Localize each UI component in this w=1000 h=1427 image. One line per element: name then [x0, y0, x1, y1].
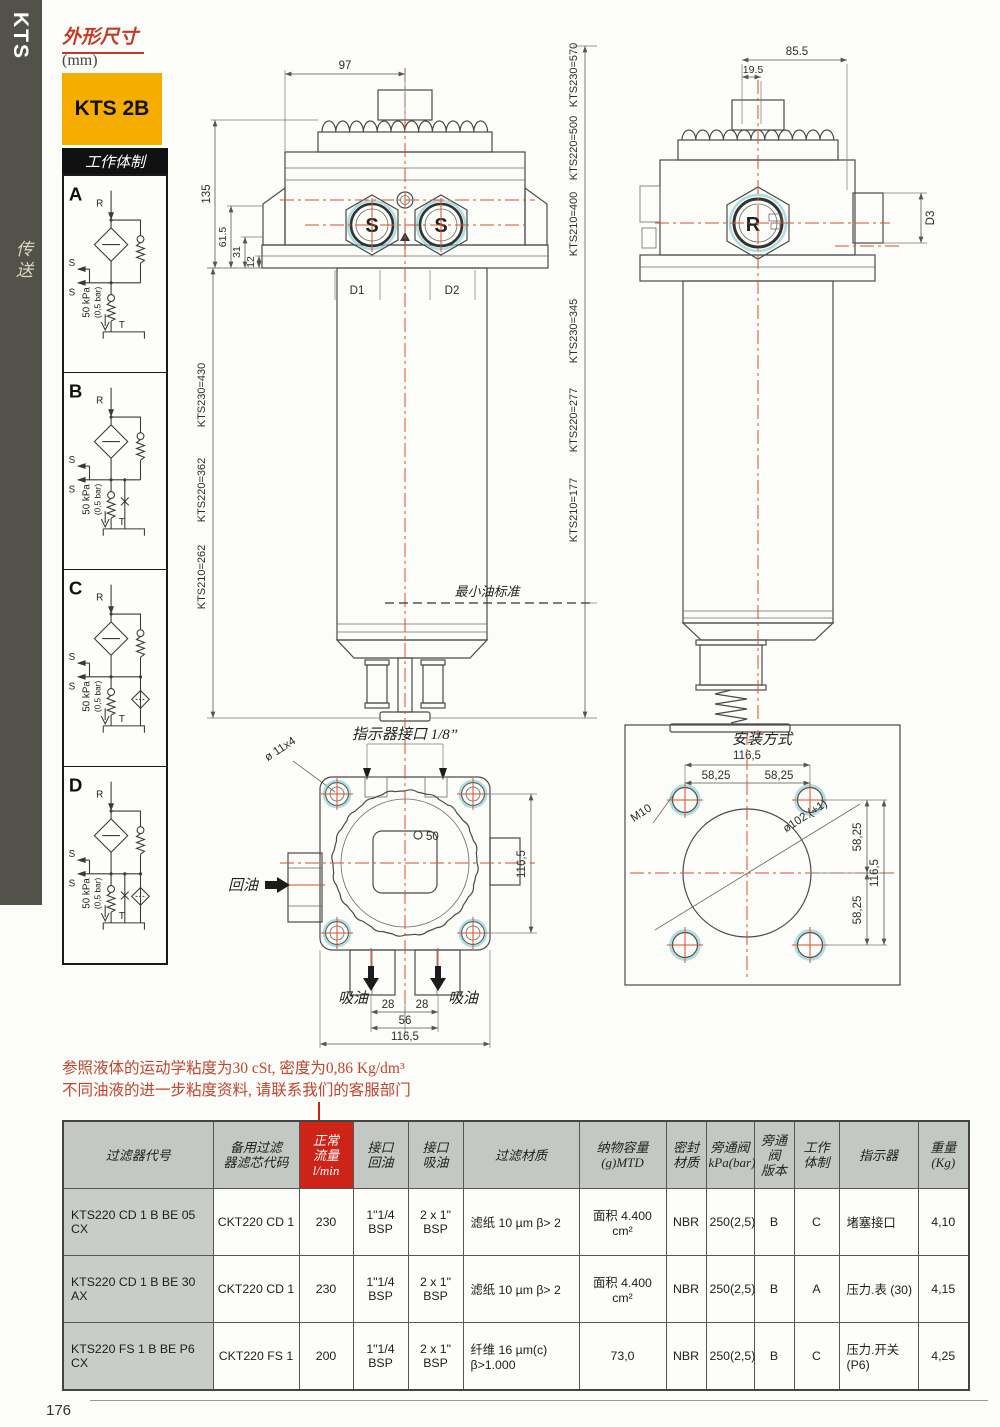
flow-column-pointer — [318, 1102, 320, 1120]
dim-12: 12 — [245, 256, 257, 268]
col-header-9: 旁通阀 版本 — [754, 1121, 794, 1189]
scheme-B-diagram: BRSST50 kPa(0,5 bar) — [64, 373, 166, 569]
scheme-D: DRSST50 kPa(0,5 bar) — [64, 766, 166, 963]
table-cell: KTS220 CD 1 B BE 05 CX — [63, 1189, 213, 1256]
dim-85-5: 85.5 — [786, 46, 808, 58]
svg-text:S: S — [69, 258, 76, 269]
height-total-220: KTS220=500 — [568, 116, 580, 181]
col-header-11: 指示器 — [839, 1121, 918, 1189]
scheme-D-diagram: DRSST50 kPa(0,5 bar) — [64, 767, 166, 963]
table-cell: 230 — [299, 1256, 353, 1323]
col-header-12: 重量 (Kg) — [918, 1121, 969, 1189]
table-cell: 2 x 1" BSP — [408, 1256, 463, 1323]
svg-text:50 kPa: 50 kPa — [82, 878, 93, 909]
table-cell: C — [794, 1189, 839, 1256]
dim-58-left: 58,25 — [702, 770, 731, 782]
svg-text:D: D — [69, 774, 82, 795]
svg-text:R: R — [96, 198, 103, 209]
col-header-6: 纳物容量 (g)MTD — [579, 1121, 666, 1189]
table-cell: 纤维 16 µm(c) β>1.000 — [463, 1323, 579, 1391]
table-cell: 230 — [299, 1189, 353, 1256]
min-oil-label: 最小油标准 — [454, 584, 521, 599]
dim-56: 56 — [399, 1015, 412, 1027]
suction-port-label: 吸油 — [338, 990, 370, 1007]
catalog-page: KTS 传送 外形尺寸 (mm) KTS 2B 工作体制 ARSST50 kPa… — [0, 0, 1000, 1427]
svg-text:(0,5 bar): (0,5 bar) — [92, 483, 102, 515]
dim-19-5: 19.5 — [743, 64, 764, 76]
table-cell: NBR — [666, 1323, 706, 1391]
col-header-0: 过滤器代号 — [63, 1121, 213, 1189]
schemes-title: 工作体制 — [62, 148, 168, 174]
page-title: 外形尺寸 — [62, 22, 144, 54]
front-dimensions: 97 135 61.5 31 12 D1 D2 KTS230=570 KTS22 — [196, 43, 597, 718]
col-header-3: 接口 回油 — [353, 1121, 408, 1189]
svg-text:S: S — [69, 652, 76, 663]
table-cell: 250(2,5) — [706, 1189, 754, 1256]
table-cell: NBR — [666, 1256, 706, 1323]
table-cell: C — [794, 1323, 839, 1391]
height-total-210: KTS210=400 — [568, 192, 580, 257]
svg-text:(0,5 bar): (0,5 bar) — [92, 877, 102, 909]
svg-text:S: S — [69, 485, 76, 496]
height-total-230: KTS230=570 — [568, 43, 580, 108]
table-cell: 73,0 — [579, 1323, 666, 1391]
top-view: 指示器接口 1/8” ø 11x4 — [228, 726, 537, 1048]
svg-text:S: S — [69, 682, 76, 693]
dim-28b: 28 — [416, 999, 429, 1011]
front-view: S S — [262, 68, 548, 728]
technical-drawing: S S — [185, 28, 975, 1058]
scheme-A: ARSST50 kPa(0,5 bar) — [64, 176, 166, 372]
svg-text:R: R — [96, 592, 103, 603]
dim-116-5: 116,5 — [391, 1031, 419, 1043]
table-cell: 2 x 1" BSP — [408, 1323, 463, 1391]
footer-rule — [90, 1400, 988, 1401]
spec-table: 过滤器代号备用过滤 器滤芯代码正常 流量 l/min接口 回油接口 吸油过滤材质… — [62, 1120, 970, 1391]
dim-58-r2: 58,25 — [852, 896, 864, 925]
table-row: KTS220 CD 1 B BE 30 AXCKT220 CD 12301"1/… — [63, 1256, 969, 1323]
page-number: 176 — [46, 1402, 71, 1419]
dim-116-5-side: 116,5 — [516, 850, 528, 878]
col-header-1: 备用过滤 器滤芯代码 — [213, 1121, 299, 1189]
svg-text:T: T — [119, 911, 125, 922]
table-cell: A — [794, 1256, 839, 1323]
table-cell: 面积 4.400 cm² — [579, 1256, 666, 1323]
scheme-C: CRSST50 kPa(0,5 bar) — [64, 569, 166, 766]
dim-28a: 28 — [382, 999, 395, 1011]
scheme-A-diagram: ARSST50 kPa(0,5 bar) — [64, 176, 166, 372]
svg-text:50 kPa: 50 kPa — [82, 484, 93, 515]
svg-text:S: S — [69, 849, 76, 860]
table-row: KTS220 CD 1 B BE 05 CXCKT220 CD 12301"1/… — [63, 1189, 969, 1256]
table-row: KTS220 FS 1 B BE P6 CXCKT220 FS 12001"1/… — [63, 1323, 969, 1391]
height-oil-210: KTS210=177 — [568, 478, 580, 543]
schemes-list: ARSST50 kPa(0,5 bar)BRSST50 kPa(0,5 bar)… — [62, 174, 168, 965]
mounting-view: 安装方式 116,5 58,25 58,25 M10 ø102 (+1) — [625, 725, 900, 985]
table-cell: CKT220 CD 1 — [213, 1189, 299, 1256]
table-cell: 250(2,5) — [706, 1256, 754, 1323]
mounting-title: 安装方式 — [732, 731, 794, 748]
svg-text:C: C — [69, 577, 82, 598]
viscosity-note: 参照液体的运动学粘度为30 cSt, 密度为0,86 Kg/dm³ 不同油液的进… — [62, 1058, 411, 1102]
table-cell: 压力.表 (30) — [839, 1256, 918, 1323]
dim-d1: D1 — [350, 285, 365, 297]
bolt-size-label: M10 — [629, 802, 654, 824]
table-cell: 4,10 — [918, 1189, 969, 1256]
table-cell: CKT220 CD 1 — [213, 1256, 299, 1323]
svg-text:T: T — [119, 517, 125, 528]
table-cell: 滤纸 10 µm β> 2 — [463, 1189, 579, 1256]
svg-text:(0,5 bar): (0,5 bar) — [92, 680, 102, 712]
table-cell: 压力.开关(P6) — [839, 1323, 918, 1391]
table-cell: 250(2,5) — [706, 1323, 754, 1391]
side-dimensions: 85.5 19.5 D3 — [742, 46, 937, 243]
col-header-2: 正常 流量 l/min — [299, 1121, 353, 1189]
svg-text:T: T — [119, 714, 125, 725]
svg-text:R: R — [96, 789, 103, 800]
sidebar-series-label: KTS — [8, 12, 32, 60]
table-cell: CKT220 FS 1 — [213, 1323, 299, 1391]
scheme-B: BRSST50 kPa(0,5 bar) — [64, 372, 166, 569]
dim-97: 97 — [339, 60, 352, 72]
svg-text:S: S — [69, 879, 76, 890]
dim-135: 135 — [201, 184, 213, 203]
unit-label: (mm) — [62, 52, 98, 70]
dim-61-5: 61.5 — [217, 227, 229, 248]
note-line-2: 不同油液的进一步粘度资料, 请联系我们的客服部门 — [62, 1080, 411, 1102]
sidebar-vertical-label: 传送 — [10, 240, 35, 282]
dim-d3: D3 — [925, 211, 937, 226]
col-header-4: 接口 吸油 — [408, 1121, 463, 1189]
dim-31: 31 — [231, 246, 243, 258]
svg-text:S: S — [69, 288, 76, 299]
center-hole-label: 50 — [426, 831, 439, 843]
table-cell: 4,15 — [918, 1256, 969, 1323]
svg-text:50 kPa: 50 kPa — [82, 287, 93, 318]
svg-text:B: B — [69, 380, 82, 401]
note-line-1: 参照液体的运动学粘度为30 cSt, 密度为0,86 Kg/dm³ — [62, 1058, 411, 1080]
height-oil-230: KTS230=345 — [568, 299, 580, 364]
table-cell: KTS220 FS 1 B BE P6 CX — [63, 1323, 213, 1391]
bore-label: ø102 (+1) — [781, 798, 830, 835]
col-header-8: 旁通阀 kPa(bar) — [706, 1121, 754, 1189]
dim-58-right: 58,25 — [765, 770, 794, 782]
table-cell: 1"1/4 BSP — [353, 1323, 408, 1391]
table-cell: 堵塞接口 — [839, 1189, 918, 1256]
table-cell: KTS220 CD 1 B BE 30 AX — [63, 1256, 213, 1323]
dim-d2: D2 — [445, 285, 460, 297]
col-header-5: 过滤材质 — [463, 1121, 579, 1189]
scheme-C-diagram: CRSST50 kPa(0,5 bar) — [64, 570, 166, 766]
svg-text:T: T — [119, 320, 125, 331]
body-220: KTS220=362 — [196, 458, 208, 523]
return-port-label: 回油 — [228, 877, 260, 894]
table-cell: B — [754, 1189, 794, 1256]
svg-text:A: A — [69, 183, 82, 204]
dim-116-5-right: 116,5 — [869, 859, 881, 887]
side-view: R — [640, 80, 903, 740]
table-cell: 200 — [299, 1323, 353, 1391]
table-cell: 1"1/4 BSP — [353, 1256, 408, 1323]
height-oil-220: KTS220=277 — [568, 388, 580, 453]
table-cell: 4,25 — [918, 1323, 969, 1391]
sidebar-tab: KTS 传送 — [0, 0, 42, 905]
table-cell: 滤纸 10 µm β> 2 — [463, 1256, 579, 1323]
working-schemes-panel: 工作体制 ARSST50 kPa(0,5 bar)BRSST50 kPa(0,5… — [62, 148, 168, 965]
model-badge: KTS 2B — [62, 73, 162, 145]
table-cell: NBR — [666, 1189, 706, 1256]
suction-port-label: 吸油 — [448, 990, 480, 1007]
col-header-7: 密封 材质 — [666, 1121, 706, 1189]
col-header-10: 工作 体制 — [794, 1121, 839, 1189]
table-header-row: 过滤器代号备用过滤 器滤芯代码正常 流量 l/min接口 回油接口 吸油过滤材质… — [63, 1121, 969, 1189]
port-r-label: R — [746, 214, 761, 236]
svg-text:(0,5 bar): (0,5 bar) — [92, 286, 102, 318]
table-cell: 1"1/4 BSP — [353, 1189, 408, 1256]
body-230: KTS230=430 — [196, 363, 208, 428]
body-210: KTS210=262 — [196, 545, 208, 610]
svg-text:S: S — [69, 455, 76, 466]
table-cell: B — [754, 1256, 794, 1323]
table-cell: 面积 4.400 cm² — [579, 1189, 666, 1256]
svg-text:R: R — [96, 395, 103, 406]
table-cell: B — [754, 1323, 794, 1391]
hole-pattern-label: ø 11x4 — [263, 735, 299, 764]
dim-58-r1: 58,25 — [852, 823, 864, 852]
table-cell: 2 x 1" BSP — [408, 1189, 463, 1256]
svg-text:50 kPa: 50 kPa — [82, 681, 93, 712]
